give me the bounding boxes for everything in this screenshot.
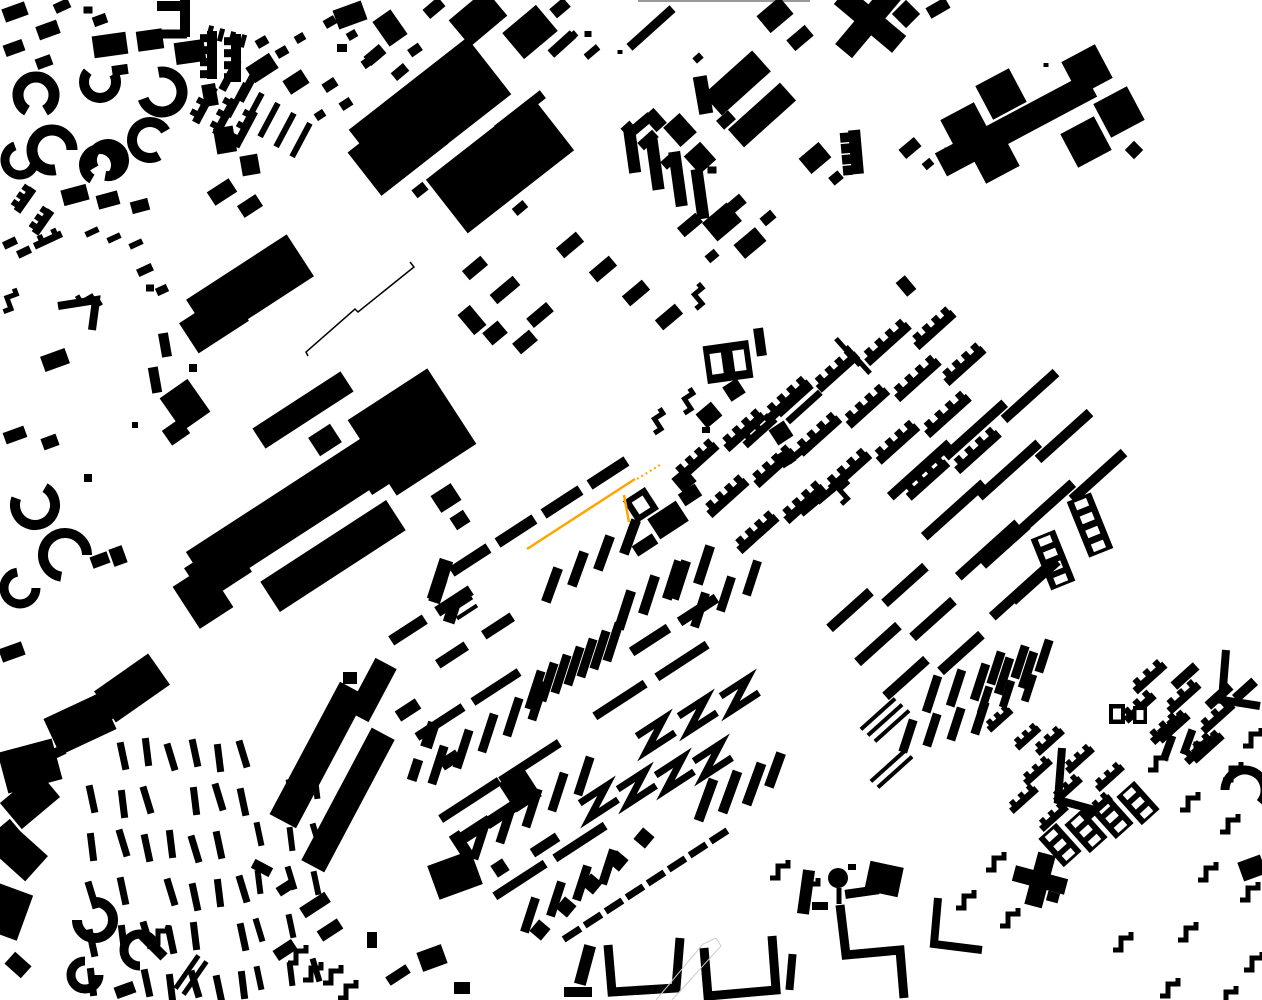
figure-ground-map xyxy=(0,0,1262,1000)
map-canvas xyxy=(0,0,1262,1000)
